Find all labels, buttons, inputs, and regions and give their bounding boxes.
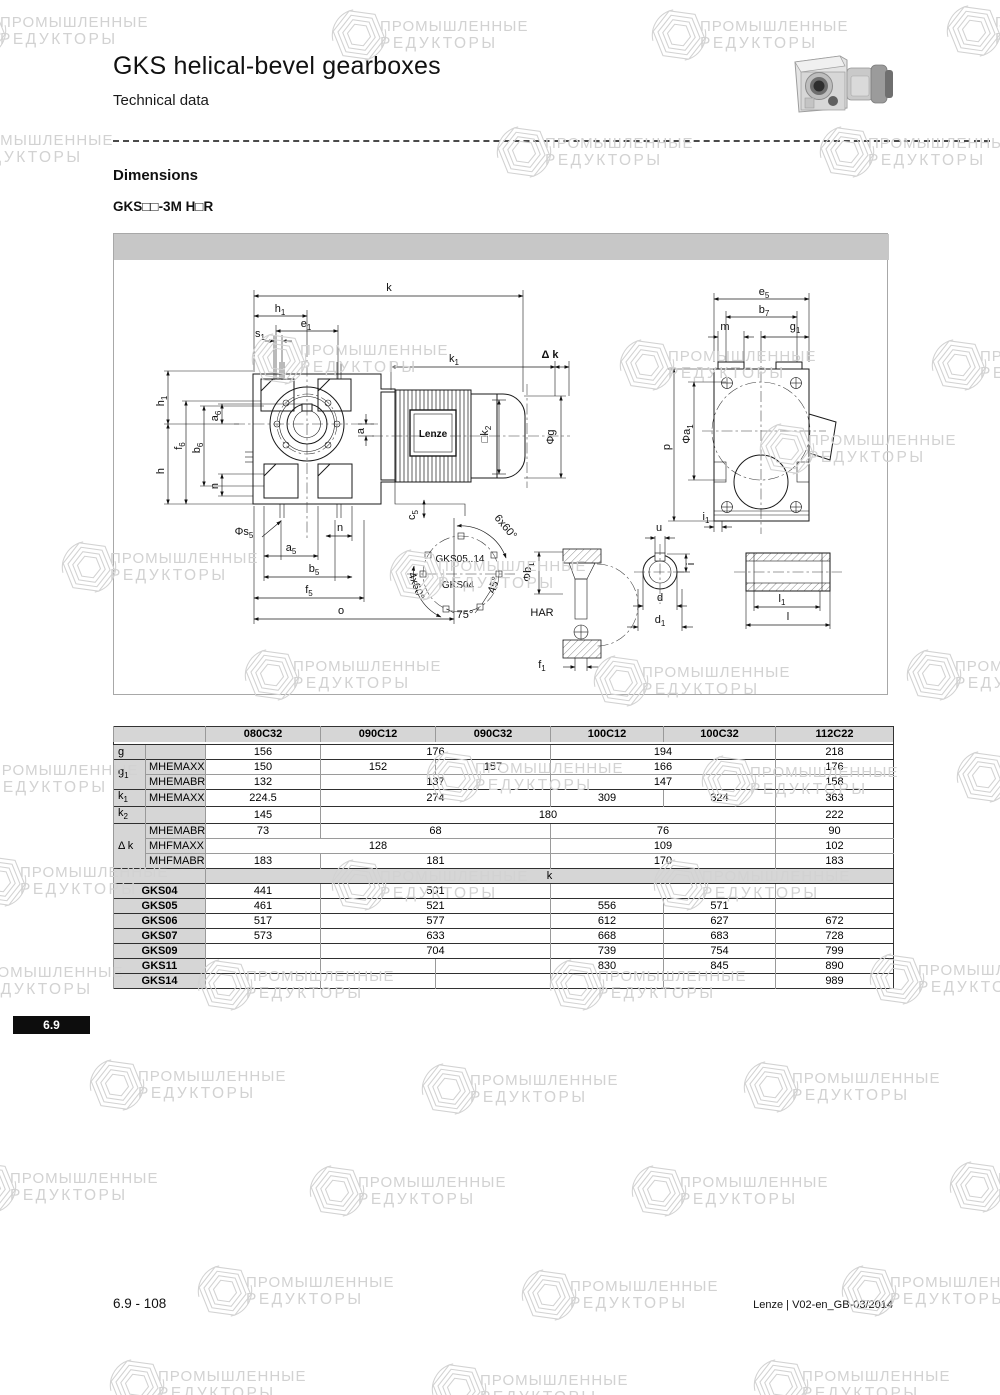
dimension-label: GKS04 xyxy=(442,580,475,591)
table-row: GKS07573633668683728 xyxy=(114,929,894,944)
row-label: GKS04 xyxy=(114,884,206,899)
watermark: ПРОМЫШЛЕННЫЕРЕДУКТОРЫ xyxy=(420,1060,618,1118)
dimension-label: Φs5 xyxy=(235,526,254,540)
table-row: g1MHEMAXX150152157166176 xyxy=(114,760,894,775)
value-cell: 683 xyxy=(664,929,776,944)
value-cell: 633 xyxy=(321,929,551,944)
value-cell: 224.5 xyxy=(206,790,321,807)
table-corner-cell xyxy=(114,727,206,742)
dimension-label: d xyxy=(657,592,663,604)
dimension-label: GKS05..14 xyxy=(436,554,485,565)
row-sublabel: MHFMABR xyxy=(146,854,206,869)
watermark: ПРОМЫШЛЕННЫЕРЕДУКТОРЫ xyxy=(495,123,693,181)
value-cell: 137 xyxy=(321,775,551,790)
dimension-label: 6x60° xyxy=(492,512,519,541)
watermark-text-line1: ПРОМЫШЛЕННЫЕ xyxy=(700,18,848,35)
dimension-label: 45° xyxy=(486,575,503,595)
value-cell xyxy=(551,884,776,899)
row-label: g1 xyxy=(114,760,146,790)
value-cell: 309 xyxy=(551,790,664,807)
watermark-hexagon-icon xyxy=(742,1058,800,1116)
dimension-label: o xyxy=(338,605,344,617)
dimension-label: s1 xyxy=(255,328,266,342)
watermark-text-line1: ПРОМЫШЛЕННЫЕ xyxy=(955,658,1000,675)
dimension-label: e5 xyxy=(759,286,770,300)
watermark-text-line2: РЕДУКТОРЫ xyxy=(358,1191,506,1208)
dimension-label: l1 xyxy=(779,593,786,607)
watermark-hexagon-icon xyxy=(60,538,118,596)
watermark-text-line1: ПРОМЫШЛЕННЫЕ xyxy=(570,1278,718,1295)
value-cell: 102 xyxy=(776,839,894,854)
drawing-header-band xyxy=(114,234,889,260)
watermark: ПРОМЫШЛЕННЫЕРЕДУКТОРЫ xyxy=(930,336,1000,394)
value-cell xyxy=(436,959,551,974)
watermark-text-line2: РЕДУКТОРЫ xyxy=(470,1089,618,1106)
watermark: ПРОМЫШЛЕННЫЕРЕДУКТОРЫ xyxy=(520,1266,718,1324)
table-header-row: 080C32090C12090C32100C12100C32112C22 xyxy=(114,727,894,742)
value-cell: 157 xyxy=(436,760,551,775)
watermark-hexagon-icon xyxy=(840,1262,898,1320)
watermark-text-line2: РЕДУКТОРЫ xyxy=(480,1389,628,1395)
watermark: ПРОМЫШЛЕННЫЕРЕДУКТОРЫ xyxy=(945,2,1000,60)
watermark-hexagon-icon xyxy=(948,1158,1000,1216)
watermark-text-line1: ПРОМЫШЛЕННЫЕ xyxy=(158,1368,306,1385)
row-sublabel xyxy=(146,807,206,824)
watermark-text-line2: РЕДУКТОРЫ xyxy=(0,981,123,998)
k-section-label: k xyxy=(206,869,894,884)
watermark: ПРОМЫШЛЕННЫЕРЕДУКТОРЫ xyxy=(88,1056,286,1114)
value-cell xyxy=(206,974,321,989)
value-cell: 799 xyxy=(776,944,894,959)
column-header: 090C32 xyxy=(436,727,551,742)
watermark: ПРОМЫШЛЕННЫЕРЕДУКТОРЫ xyxy=(955,748,1000,806)
value-cell: 156 xyxy=(206,745,321,760)
watermark-hexagon-icon xyxy=(88,1056,146,1114)
dimension-label: Lenze xyxy=(419,429,448,440)
dimension-label: f1 xyxy=(538,659,546,673)
watermark: ПРОМЫШЛЕННЫЕРЕДУКТОРЫ xyxy=(840,1262,1000,1320)
dimension-label: □k2 xyxy=(479,425,493,442)
column-header: 090C12 xyxy=(321,727,436,742)
watermark: ПРОМЫШЛЕННЫЕРЕДУКТОРЫ xyxy=(742,1058,940,1116)
row-sublabel: MHEMAXX xyxy=(146,760,206,775)
watermark-text-line1: ПРОМЫШЛЕННЫЕ xyxy=(545,135,693,152)
watermark: ПРОМЫШЛЕННЫЕРЕДУКТОРЫ xyxy=(108,1356,306,1395)
watermark-text-line1: ПРОМЫШЛЕННЫЕ xyxy=(0,14,148,31)
k-section-left xyxy=(114,869,206,884)
watermark-text-line2: РЕДУКТОРЫ xyxy=(868,152,1000,169)
watermark-text-line2: РЕДУКТОРЫ xyxy=(246,1291,394,1308)
dimension-label: i1 xyxy=(703,511,710,525)
value-cell: 183 xyxy=(776,854,894,869)
row-label: GKS06 xyxy=(114,914,206,929)
watermark-hexagon-icon xyxy=(905,646,963,704)
dimension-label: g1 xyxy=(790,321,801,335)
watermark-text-line2: РЕДУКТОРЫ xyxy=(10,1187,158,1204)
row-label: GKS14 xyxy=(114,974,206,989)
page-subtitle: Technical data xyxy=(113,92,209,109)
dimension-label: Δ k xyxy=(541,349,559,361)
dimension-label: h1 xyxy=(275,303,286,317)
row-label: Δ k xyxy=(114,824,146,869)
value-cell: 461 xyxy=(206,899,321,914)
watermark-text-line2: РЕДУКТОРЫ xyxy=(138,1085,286,1102)
side-view xyxy=(668,293,836,534)
watermark-text-line2: РЕДУКТОРЫ xyxy=(890,1291,1000,1308)
dimensions-table: 080C32090C12090C32100C12100C32112C22g156… xyxy=(113,726,894,989)
watermark-text-line1: ПРОМЫШЛЕННЫЕ xyxy=(0,964,123,981)
footer-page-number: 6.9 - 108 xyxy=(113,1296,166,1311)
value-cell xyxy=(321,959,436,974)
dimension-label: h xyxy=(155,468,167,474)
value-cell xyxy=(321,974,436,989)
watermark-text-line2: РЕДУКТОРЫ xyxy=(955,675,1000,692)
row-sublabel: MHFMAXX xyxy=(146,839,206,854)
dimension-label: d1 xyxy=(655,614,666,628)
value-cell: 556 xyxy=(551,899,664,914)
row-label: GKS07 xyxy=(114,929,206,944)
watermark: ПРОМЫШЛЕННЫЕРЕДУКТОРЫ xyxy=(0,1158,158,1216)
watermark: ПРОМЫШЛЕННЫЕРЕДУКТОРЫ xyxy=(196,1262,394,1320)
watermark-hexagon-icon xyxy=(0,2,8,60)
watermark-hexagon-icon xyxy=(930,336,988,394)
value-cell xyxy=(551,974,664,989)
dimension-label: 75° xyxy=(457,609,474,621)
watermark-text-line1: ПРОМЫШЛЕННЫЕ xyxy=(792,1070,940,1087)
table-row: GKS06517577612627672 xyxy=(114,914,894,929)
value-cell: 830 xyxy=(551,959,664,974)
watermark-text-line2: РЕДУКТОРЫ xyxy=(980,365,1000,382)
dimension-label: Φb1 xyxy=(522,562,536,582)
value-cell: 989 xyxy=(776,974,894,989)
dimension-label: Φg xyxy=(545,430,557,445)
row-label: GKS09 xyxy=(114,944,206,959)
value-cell: 704 xyxy=(321,944,551,959)
watermark: ПРОМЫШЛЕННЫЕРЕДУКТОРЫ xyxy=(0,120,113,178)
table-row: GKS11830845890 xyxy=(114,959,894,974)
watermark-text-line1: ПРОМЫШЛЕННЫЕ xyxy=(246,1274,394,1291)
dimension-label: Φa1 xyxy=(681,424,695,444)
catalog-page: GKS helical-bevel gearboxes Technical da… xyxy=(0,0,1000,1395)
watermark-hexagon-icon xyxy=(0,852,28,910)
dimension-label: n xyxy=(209,483,221,489)
dimension-label: a xyxy=(355,427,367,434)
table-row: MHEMABR132137147158 xyxy=(114,775,894,790)
value-cell: 521 xyxy=(321,899,551,914)
watermark: ПРОМЫШЛЕННЫЕРЕДУКТОРЫ xyxy=(752,1356,950,1395)
bolt-circle-diagram xyxy=(407,526,515,617)
value-cell: 180 xyxy=(321,807,776,824)
value-cell: 150 xyxy=(206,760,321,775)
watermark: ПРОМЫШЛЕННЫЕРЕДУКТОРЫ xyxy=(308,1162,506,1220)
watermark-hexagon-icon xyxy=(650,6,708,64)
row-label: k2 xyxy=(114,807,146,824)
value-cell: 728 xyxy=(776,929,894,944)
watermark: ПРОМЫШЛЕННЫЕРЕДУКТОРЫ xyxy=(0,952,123,1010)
watermark-text-line1: ПРОМЫШЛЕННЫЕ xyxy=(918,962,1000,979)
dimensions-table-wrap: 080C32090C12090C32100C12100C32112C22g156… xyxy=(113,726,893,989)
value-cell: 147 xyxy=(551,775,776,790)
value-cell: 218 xyxy=(776,745,894,760)
value-cell xyxy=(206,944,321,959)
value-cell: 577 xyxy=(321,914,551,929)
watermark-text-line1: ПРОМЫШЛЕННЫЕ xyxy=(680,1174,828,1191)
table-row: GKS09704739754799 xyxy=(114,944,894,959)
row-label: GKS11 xyxy=(114,959,206,974)
watermark-text-line1: ПРОМЫШЛЕННЫЕ xyxy=(0,132,113,149)
value-cell: 183 xyxy=(206,854,321,869)
watermark-text-line1: ПРОМЫШЛЕННЫЕ xyxy=(890,1274,1000,1291)
product-photo-gearmotor xyxy=(785,46,900,121)
section-heading: Dimensions xyxy=(113,167,198,184)
table-row: GKS05461521556571 xyxy=(114,899,894,914)
watermark-text-line2: РЕДУКТОРЫ xyxy=(0,31,148,48)
value-cell: 145 xyxy=(206,807,321,824)
row-label: GKS05 xyxy=(114,899,206,914)
row-sublabel: MHEMABR xyxy=(146,775,206,790)
value-cell xyxy=(206,959,321,974)
column-header: 100C32 xyxy=(664,727,776,742)
dimension-label: a6 xyxy=(209,410,223,421)
column-header: 112C22 xyxy=(776,727,894,742)
dimension-label: l xyxy=(787,611,789,623)
watermark-hexagon-icon xyxy=(196,1262,254,1320)
watermark: ПРОМЫШЛЕННЫЕРЕДУКТОРЫ xyxy=(818,123,1000,181)
value-cell xyxy=(436,974,551,989)
watermark-text-line1: ПРОМЫШЛЕННЫЕ xyxy=(802,1368,950,1385)
watermark-hexagon-icon xyxy=(955,748,1000,806)
footer-document-id: Lenze | V02-en_GB-03/2014 xyxy=(753,1299,893,1311)
value-cell: 668 xyxy=(551,929,664,944)
watermark-hexagon-icon xyxy=(308,1162,366,1220)
dashed-separator xyxy=(113,140,990,142)
watermark-text-line1: ПРОМЫШЛЕННЫЕ xyxy=(480,1372,628,1389)
dimension-label: i xyxy=(685,563,697,565)
dimension-label: b6 xyxy=(191,442,205,453)
row-sublabel: MHEMAXX xyxy=(146,790,206,807)
watermark-text-line2: РЕДУКТОРЫ xyxy=(995,31,1000,48)
value-cell: 672 xyxy=(776,914,894,929)
value-cell: 68 xyxy=(321,824,551,839)
watermark-hexagon-icon xyxy=(0,1158,18,1216)
dimension-label: m xyxy=(720,321,729,333)
value-cell: 573 xyxy=(206,929,321,944)
dimension-label: f6 xyxy=(173,442,187,450)
variant-label: GKS□□-3M H□R xyxy=(113,199,213,214)
watermark-hexagon-icon xyxy=(945,2,1000,60)
row-label: g xyxy=(114,745,146,760)
chapter-tab-badge: 6.9 xyxy=(13,1016,90,1034)
value-cell: 128 xyxy=(206,839,551,854)
watermark-hexagon-icon xyxy=(420,1060,478,1118)
value-cell: 441 xyxy=(206,884,321,899)
value-cell xyxy=(664,974,776,989)
dimension-label: h1 xyxy=(155,395,169,406)
table-row: MHFMAXX128109102 xyxy=(114,839,894,854)
dimension-label: u xyxy=(656,522,662,534)
watermark-hexagon-icon xyxy=(630,1162,688,1220)
watermark-hexagon-icon xyxy=(108,1356,166,1395)
dimension-label: k1 xyxy=(449,353,460,367)
watermark-text-line1: ПРОМЫШЛЕННЫЕ xyxy=(138,1068,286,1085)
watermark-hexagon-icon xyxy=(752,1356,810,1395)
row-label: k1 xyxy=(114,790,146,807)
value-cell: 90 xyxy=(776,824,894,839)
value-cell xyxy=(776,884,894,899)
table-row: MHFMABR183181170183 xyxy=(114,854,894,869)
value-cell: 152 xyxy=(321,760,436,775)
value-cell: 176 xyxy=(776,760,894,775)
dimension-label: n xyxy=(337,522,343,534)
value-cell: 132 xyxy=(206,775,321,790)
watermark-text-line1: ПРОМЫШЛЕННЫЕ xyxy=(380,18,528,35)
watermark-text-line1: ПРОМЫШЛЕННЫЕ xyxy=(10,1170,158,1187)
table-row: g156176194218 xyxy=(114,745,894,760)
value-cell: 324 xyxy=(664,790,776,807)
table-row: GKS14989 xyxy=(114,974,894,989)
k-section-header-row: k xyxy=(114,869,894,884)
value-cell: 76 xyxy=(551,824,776,839)
value-cell xyxy=(776,899,894,914)
value-cell: 571 xyxy=(664,899,776,914)
watermark-text-line2: РЕДУКТОРЫ xyxy=(680,1191,828,1208)
value-cell: 109 xyxy=(551,839,776,854)
value-cell: 739 xyxy=(551,944,664,959)
value-cell: 170 xyxy=(551,854,776,869)
dimension-label: c5 xyxy=(406,509,420,520)
watermark-text-line1: ПРОМЫШЛЕННЫЕ xyxy=(868,135,1000,152)
dimension-label: b7 xyxy=(759,304,770,318)
table-row: k1MHEMAXX224.5274309324363 xyxy=(114,790,894,807)
technical-drawing-box: kh1e1s1k1Δ kh1f6b6a6hna□k2ΦgLenzeΦs5na5b… xyxy=(113,233,888,695)
value-cell: 612 xyxy=(551,914,664,929)
value-cell: 73 xyxy=(206,824,321,839)
technical-drawing: kh1e1s1k1Δ kh1f6b6a6hna□k2ΦgLenzeΦs5na5b… xyxy=(114,234,889,696)
watermark-hexagon-icon xyxy=(818,123,876,181)
value-cell: 158 xyxy=(776,775,894,790)
dimension-label: e1 xyxy=(301,318,312,332)
dimension-label: f5 xyxy=(305,584,313,598)
value-cell: 363 xyxy=(776,790,894,807)
watermark: ПРОМЫШЛЕННЫЕРЕДУКТОРЫ xyxy=(948,1158,1000,1216)
dimension-label: b5 xyxy=(309,563,320,577)
row-sublabel xyxy=(146,745,206,760)
watermark: ПРОМЫШЛЕННЫЕРЕДУКТОРЫ xyxy=(905,646,1000,704)
value-cell: 274 xyxy=(321,790,551,807)
watermark-text-line1: ПРОМЫШЛЕННЫЕ xyxy=(358,1174,506,1191)
watermark-text-line1: ПРОМЫШЛЕННЫЕ xyxy=(995,14,1000,31)
dimension-label: k xyxy=(386,282,392,294)
value-cell: 754 xyxy=(664,944,776,959)
watermark-hexagon-icon xyxy=(520,1266,578,1324)
value-cell: 845 xyxy=(664,959,776,974)
watermark-text-line1: ПРОМЫШЛЕННЫЕ xyxy=(470,1072,618,1089)
watermark-text-line2: РЕДУКТОРЫ xyxy=(802,1385,950,1395)
dimension-label: a5 xyxy=(286,542,297,556)
table-row: GKS04441501 xyxy=(114,884,894,899)
watermark: ПРОМЫШЛЕННЫЕРЕДУКТОРЫ xyxy=(430,1360,628,1395)
watermark-text-line2: РЕДУКТОРЫ xyxy=(792,1087,940,1104)
watermark-hexagon-icon xyxy=(430,1360,488,1395)
watermark: ПРОМЫШЛЕННЫЕРЕДУКТОРЫ xyxy=(630,1162,828,1220)
row-sublabel: MHEMABR xyxy=(146,824,206,839)
column-header: 100C12 xyxy=(551,727,664,742)
table-row: Δ kMHEMABR73687690 xyxy=(114,824,894,839)
value-cell: 194 xyxy=(551,745,776,760)
page-title: GKS helical-bevel gearboxes xyxy=(113,52,441,81)
value-cell: 176 xyxy=(321,745,551,760)
watermark-text-line2: РЕДУКТОРЫ xyxy=(380,35,528,52)
value-cell: 517 xyxy=(206,914,321,929)
watermark-hexagon-icon xyxy=(495,123,553,181)
value-cell: 181 xyxy=(321,854,551,869)
column-header: 080C32 xyxy=(206,727,321,742)
table-row: k2145180222 xyxy=(114,807,894,824)
watermark-text-line2: РЕДУКТОРЫ xyxy=(545,152,693,169)
dimension-label: p xyxy=(661,444,673,450)
watermark-text-line2: РЕДУКТОРЫ xyxy=(570,1295,718,1312)
value-cell: 890 xyxy=(776,959,894,974)
watermark-text-line1: ПРОМЫШЛЕННЫЕ xyxy=(980,348,1000,365)
dimension-label: HAR xyxy=(530,607,553,619)
value-cell: 222 xyxy=(776,807,894,824)
value-cell: 627 xyxy=(664,914,776,929)
watermark-text-line2: РЕДУКТОРЫ xyxy=(158,1385,306,1395)
watermark-text-line2: РЕДУКТОРЫ xyxy=(918,979,1000,996)
value-cell: 166 xyxy=(551,760,776,775)
value-cell: 501 xyxy=(321,884,551,899)
watermark-text-line2: РЕДУКТОРЫ xyxy=(0,149,113,166)
